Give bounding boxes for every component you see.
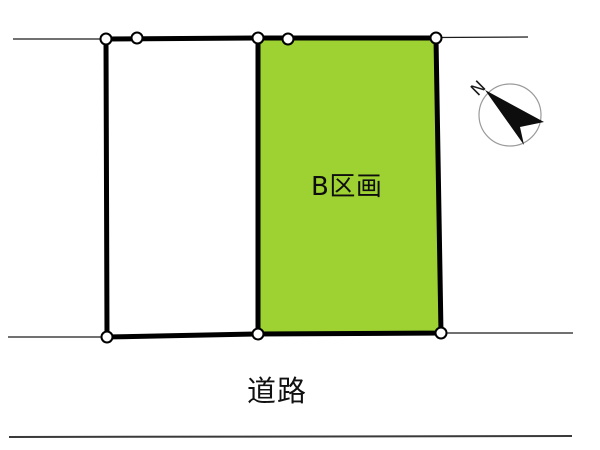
- survey-marker: [431, 33, 442, 44]
- survey-marker: [102, 332, 113, 343]
- road-bottom-edge: [9, 436, 572, 437]
- survey-marker: [436, 328, 447, 339]
- survey-marker: [132, 33, 143, 44]
- survey-marker: [253, 33, 264, 44]
- upper-boundary-line-right: [436, 37, 528, 38]
- survey-marker: [101, 34, 112, 45]
- compass-north-label: N: [467, 77, 490, 100]
- compass: N: [467, 77, 544, 146]
- survey-marker: [253, 329, 264, 340]
- land-plot-diagram: N B区画 道路: [0, 0, 600, 450]
- plot-b-label: B区画: [311, 174, 382, 200]
- plot-left-shape: [106, 38, 258, 337]
- north-arrow-icon: [485, 90, 544, 145]
- road-label: 道路: [247, 376, 307, 408]
- survey-marker: [283, 34, 294, 45]
